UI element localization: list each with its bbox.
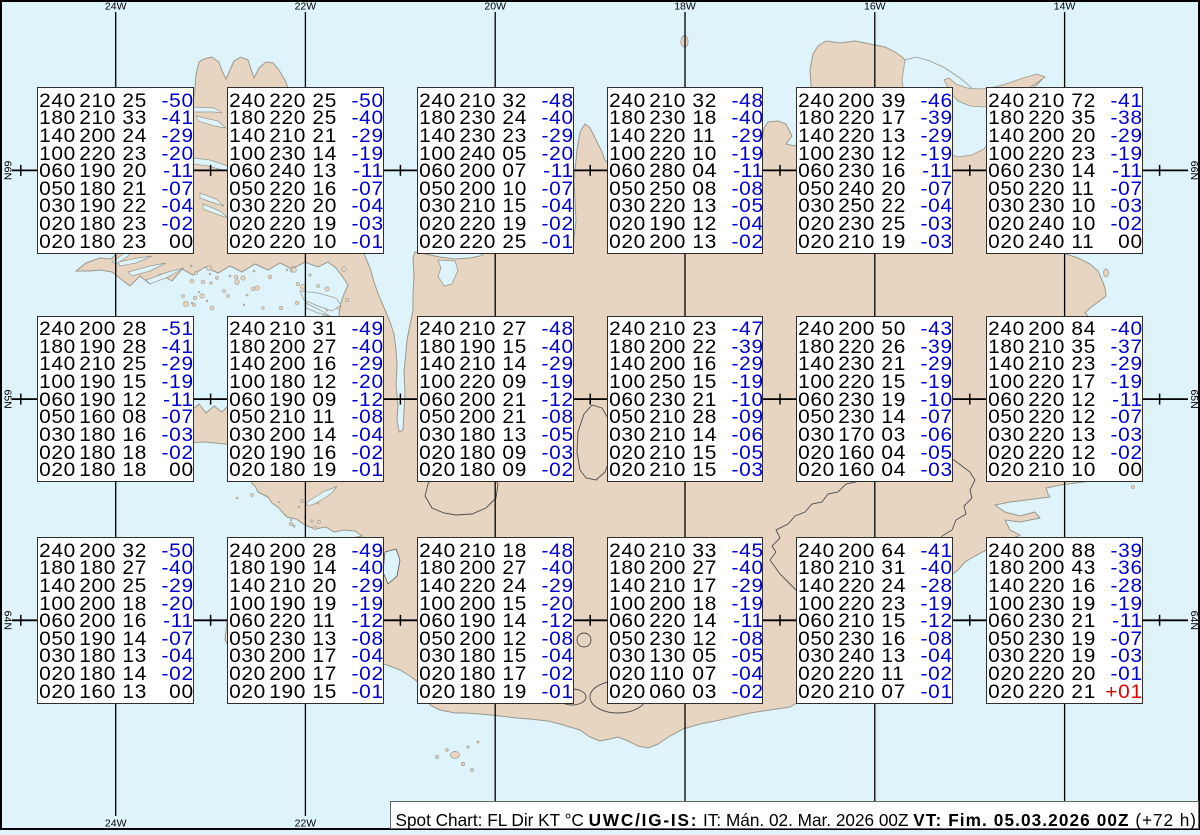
svg-text:64N: 64N <box>1188 611 1200 630</box>
svg-text:14W: 14W <box>1054 1 1076 13</box>
svg-text:24W: 24W <box>105 1 127 13</box>
svg-text:22W: 22W <box>295 818 317 830</box>
svg-text:66N: 66N <box>2 161 14 180</box>
svg-text:65N: 65N <box>1188 389 1200 408</box>
svg-text:22W: 22W <box>295 1 317 13</box>
svg-text:24W: 24W <box>105 818 127 830</box>
svg-text:16W: 16W <box>864 1 886 13</box>
svg-text:18W: 18W <box>674 1 696 13</box>
svg-text:20W: 20W <box>484 1 506 13</box>
svg-text:66N: 66N <box>1188 161 1200 180</box>
svg-text:64N: 64N <box>2 611 14 630</box>
svg-text:65N: 65N <box>2 389 14 408</box>
